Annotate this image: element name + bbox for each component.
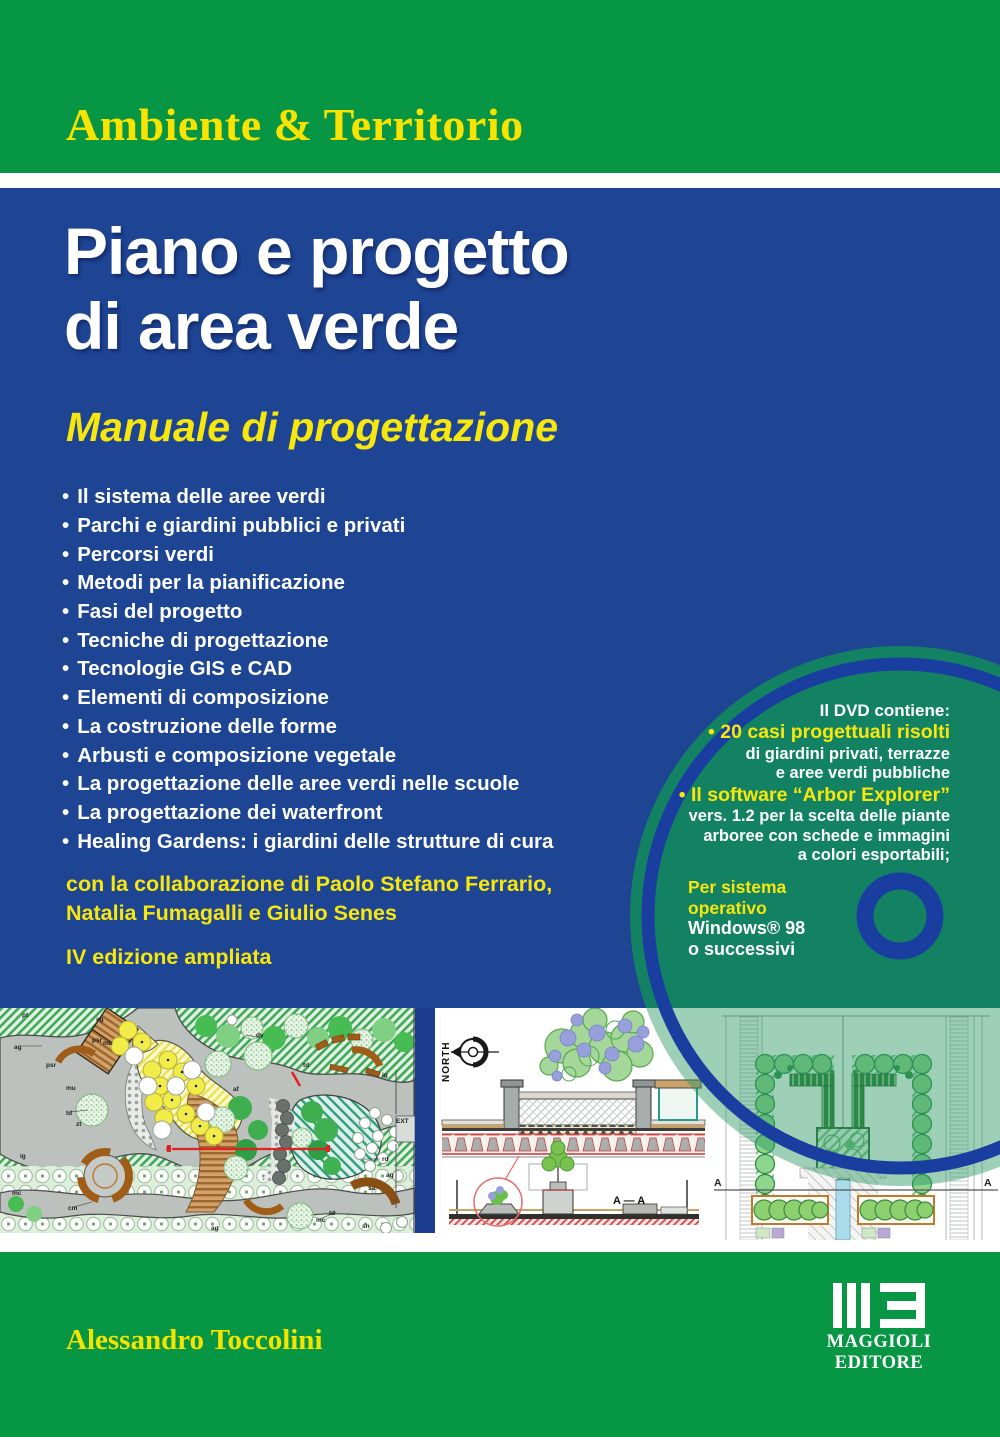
svg-text:td: td	[303, 1062, 309, 1069]
svg-text:ig: ig	[382, 1072, 388, 1079]
svg-text:af: af	[233, 1086, 240, 1093]
svg-text:td: td	[329, 1210, 335, 1217]
edition-text: IV edizione ampliata	[66, 945, 272, 970]
topic-item: • La costruzione delle forme	[62, 713, 553, 742]
collaboration-text: con la collaborazione di Paolo Stefano F…	[66, 870, 552, 928]
illustration-strip: ptagpsrmutdztigmccmagpsrmudvtdafigrdagsa…	[0, 1008, 1000, 1252]
bullet-dot-icon: •	[62, 686, 69, 710]
topic-item: • Healing Gardens: i giardini delle stru…	[62, 827, 553, 856]
svg-text:A: A	[984, 1177, 992, 1189]
topic-item: • La progettazione dei waterfront	[62, 799, 553, 828]
book-title-line2: di area verde	[64, 289, 569, 364]
svg-text:sn: sn	[362, 1223, 370, 1230]
author-name: Alessandro Toccolini	[66, 1324, 323, 1357]
dvd-line: arboree con schede e immagini	[620, 827, 950, 847]
svg-text:A: A	[714, 1177, 722, 1189]
dvd-line: • Il software “Arbor Explorer”	[620, 784, 950, 808]
topic-item: • La progettazione delle aree verdi nell…	[62, 770, 553, 799]
topic-item: • Il sistema delle aree verdi	[62, 483, 553, 512]
section-detail-drawing: NORTH	[437, 1008, 710, 1240]
dvd-line: di giardini privati, terrazze	[620, 745, 950, 765]
book-cover: Ambiente & Territorio Piano e progetto d…	[0, 0, 1000, 1437]
book-title-line1: Piano e progetto	[64, 214, 569, 289]
bullet-dot-icon: •	[62, 543, 69, 567]
svg-text:ig: ig	[20, 1153, 26, 1160]
book-title: Piano e progetto di area verde	[64, 214, 569, 364]
topic-text: Percorsi verdi	[77, 543, 214, 567]
svg-text:ag: ag	[96, 1016, 104, 1023]
topic-text: Tecniche di progettazione	[77, 629, 328, 653]
topic-text: Il sistema delle aree verdi	[77, 485, 325, 509]
series-title: Ambiente & Territorio	[66, 98, 524, 151]
svg-text:mu: mu	[66, 1085, 76, 1092]
topic-item: • Percorsi verdi	[62, 540, 553, 569]
bullet-dot-icon: •	[62, 571, 69, 595]
svg-text:td: td	[66, 1110, 72, 1117]
bullet-dot-icon: •	[62, 657, 69, 681]
svg-text:cm: cm	[68, 1205, 78, 1212]
topic-item: • Parchi e giardini pubblici e privati	[62, 512, 553, 541]
topic-list: • Il sistema delle aree verdi • Parchi e…	[62, 483, 553, 856]
topic-text: Healing Gardens: i giardini delle strutt…	[77, 830, 553, 854]
panel-divider	[415, 1008, 435, 1233]
topic-text: Tecnologie GIS e CAD	[77, 657, 292, 681]
dvd-line: Il DVD contiene:	[620, 700, 950, 721]
svg-text:ag: ag	[14, 1044, 22, 1051]
topic-text: La costruzione delle forme	[77, 715, 337, 739]
topic-text: Metodi per la pianificazione	[77, 571, 345, 595]
svg-text:dv: dv	[256, 1032, 264, 1039]
topic-item: • Tecniche di progettazione	[62, 626, 553, 655]
svg-text:rd: rd	[382, 1156, 389, 1163]
bullet-dot-icon: •	[62, 744, 69, 768]
collaboration-line: con la collaborazione di Paolo Stefano F…	[66, 870, 552, 899]
topic-item: • Metodi per la pianificazione	[62, 569, 553, 598]
dvd-line: a colori esportabili;	[620, 846, 950, 866]
bullet-dot-icon: •	[62, 772, 69, 796]
topic-text: La progettazione delle aree verdi nelle …	[77, 772, 519, 796]
maggioli-logo-icon	[833, 1283, 925, 1328]
bullet-dot-icon: •	[62, 801, 69, 825]
svg-text:EXT: EXT	[396, 1118, 409, 1125]
svg-text:mc: mc	[12, 1190, 22, 1197]
dvd-line: vers. 1.2 per la scelta delle piante	[620, 807, 950, 827]
svg-text:mc: mc	[316, 1217, 326, 1224]
garden-plan-drawing: ptagpsrmutdztigmccmagpsrmudvtdafigrdagsa…	[0, 1008, 415, 1233]
dvd-os-text: Per sistemaoperativoWindows® 98o success…	[688, 877, 805, 960]
svg-text:ag: ag	[211, 1225, 219, 1232]
bullet-dot-icon: •	[62, 485, 69, 509]
svg-text:A — A: A — A	[613, 1195, 645, 1207]
svg-text:NORTH: NORTH	[441, 1041, 452, 1082]
dvd-os-line: Windows® 98	[688, 918, 805, 939]
topic-text: Arbusti e composizione vegetale	[77, 744, 396, 768]
svg-text:ag: ag	[386, 1172, 394, 1179]
topic-text: Parchi e giardini pubblici e privati	[77, 514, 405, 538]
svg-text:mu: mu	[103, 1040, 113, 1047]
topic-item: • Tecnologie GIS e CAD	[62, 655, 553, 684]
bullet-dot-icon: •	[62, 830, 69, 854]
svg-text:D: D	[216, 1144, 221, 1151]
dvd-line: e aree verdi pubbliche	[620, 764, 950, 784]
svg-text:psr: psr	[92, 1037, 103, 1044]
topic-item: • Fasi del progetto	[62, 598, 553, 627]
dvd-os-line: operativo	[688, 898, 805, 919]
topic-item: • Arbusti e composizione vegetale	[62, 741, 553, 770]
publisher-name-line1: MAGGIOLI	[820, 1332, 938, 1353]
dvd-os-line: o successivi	[688, 939, 805, 960]
topic-text: Elementi di composizione	[77, 686, 329, 710]
courtyard-plan-drawing: A A	[712, 1008, 1000, 1240]
dvd-contents-text: Il DVD contiene:• 20 casi progettuali ri…	[620, 700, 950, 866]
svg-text:psr: psr	[46, 1062, 57, 1069]
bullet-dot-icon: •	[62, 514, 69, 538]
bullet-dot-icon: •	[62, 629, 69, 653]
topic-item: • Elementi di composizione	[62, 684, 553, 713]
svg-text:D: D	[166, 1146, 171, 1153]
svg-text:sa: sa	[368, 1185, 376, 1192]
dvd-line: • 20 casi progettuali risolti	[620, 721, 950, 745]
book-subtitle: Manuale di progettazione	[66, 404, 558, 451]
dvd-os-line: Per sistema	[688, 877, 805, 898]
svg-text:zt: zt	[76, 1121, 82, 1128]
bullet-dot-icon: •	[62, 600, 69, 624]
collaboration-line: Natalia Fumagalli e Giulio Senes	[66, 899, 552, 928]
bullet-dot-icon: •	[62, 715, 69, 739]
topic-text: La progettazione dei waterfront	[77, 801, 382, 825]
publisher-name-line2: EDITORE	[820, 1353, 938, 1374]
topic-text: Fasi del progetto	[77, 600, 242, 624]
svg-text:pt: pt	[22, 1012, 29, 1019]
publisher-logo: MAGGIOLI EDITORE	[820, 1283, 938, 1374]
